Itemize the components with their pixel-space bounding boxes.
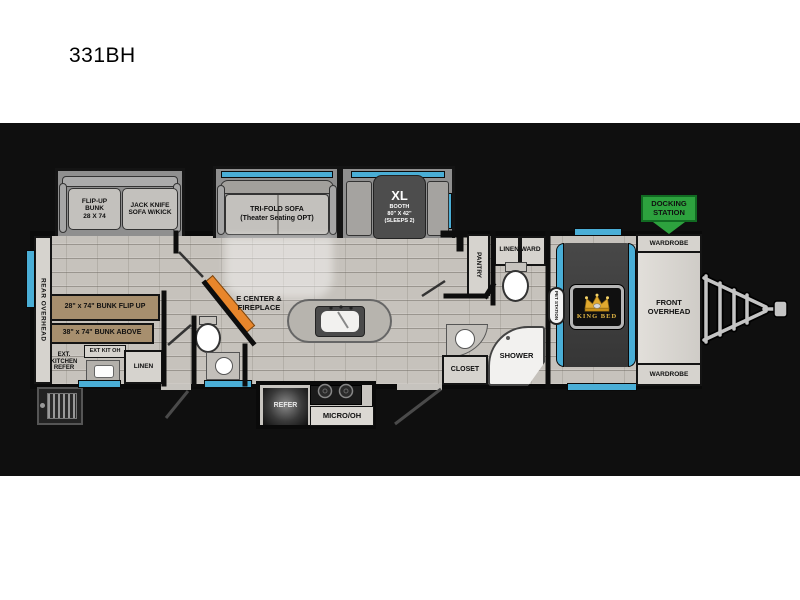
ext-kitchen-sink-counter <box>86 360 120 381</box>
ext-kitchen-overhead: EXT KIT OH <box>84 345 126 358</box>
tri-fold-armrest-right <box>329 185 337 235</box>
wardrobe-bottom: WARDROBE <box>636 363 702 386</box>
king-bed-badge: KING BED <box>570 285 624 329</box>
sofa-armrest-left <box>59 183 67 233</box>
island-sink <box>315 306 365 337</box>
tri-fold-backrest <box>220 180 334 194</box>
tri-fold-sofa-slideout: TRI-FOLD SOFA (Theater Seating OPT) <box>213 166 340 238</box>
king-bed-label: KING BED <box>577 313 617 320</box>
sofa-backrest <box>62 176 178 187</box>
linen-ward-label-wrap: LINEN/WARD <box>491 244 549 256</box>
front-overhead-label: FRONT OVERHEAD <box>648 299 691 316</box>
wardrobe-bottom-label: WARDROBE <box>650 371 689 378</box>
cooktop <box>310 385 362 405</box>
pet-station-label: PET STATION <box>554 291 559 320</box>
booth-xl-label: XL <box>391 189 408 204</box>
pantry-cabinet: PANTRY <box>467 234 490 296</box>
flip-up-bunk-cushion: FLIP-UP BUNK 28 X 74 <box>68 188 121 230</box>
model-number: 331BH <box>69 44 136 68</box>
refer-label: REFER <box>274 402 298 410</box>
pantry-label: PANTRY <box>475 252 482 278</box>
main-bath-toilet <box>500 262 530 302</box>
closet: CLOSET <box>442 355 488 385</box>
booth-bench-right <box>427 181 449 236</box>
shower-label: SHOWER <box>500 352 534 361</box>
jack-knife-sofa-label: JACK KNIFE SOFA W/KICK <box>128 202 171 217</box>
light-glow <box>225 236 333 298</box>
bed-accent-right <box>628 243 636 367</box>
toilet-bowl <box>195 323 221 353</box>
wardrobe-top-label: WARDROBE <box>650 240 689 247</box>
docking-station-banner: DOCKING STATION <box>641 195 697 222</box>
booth-details-label: BOOTH 80" X 42" (SLEEPS 2) <box>385 204 415 225</box>
micro-oh-label: MICRO/OH <box>323 412 361 421</box>
rear-window <box>26 250 35 308</box>
ext-kitchen-sink <box>94 365 114 378</box>
bunk-flip-up-bed: 28" x 74" BUNK FLIP UP <box>50 294 160 321</box>
mid-bath-window <box>204 380 252 388</box>
e-center-label-wrap: E CENTER & FIREPLACE <box>226 293 292 315</box>
booth-slideout: XL BOOTH 80" X 42" (SLEEPS 2) <box>340 166 455 238</box>
vanity-sink <box>215 357 233 375</box>
exterior-kitchen: EXT. KITCHEN REFER <box>46 344 82 380</box>
bunk-above-bed: 38" x 74" BUNK ABOVE <box>50 323 154 344</box>
flip-up-bunk-label: FLIP-UP BUNK 28 X 74 <box>82 198 107 220</box>
linen-ward-label: LINEN/WARD <box>499 246 540 253</box>
booth-bench-left <box>346 181 372 236</box>
griddle-grate <box>47 393 77 419</box>
bunk-above-label: 38" x 74" BUNK ABOVE <box>63 329 142 337</box>
docking-station-arrow <box>653 222 685 234</box>
vanity-sink <box>455 329 475 349</box>
rear-entry-door <box>161 384 191 390</box>
kitchen-appliance-wall: REFER MICRO/OH <box>256 381 376 429</box>
jack-knife-sofa-cushion: JACK KNIFE SOFA W/KICK <box>122 188 178 230</box>
bunk-sofa-slideout: FLIP-UP BUNK 28 X 74 JACK KNIFE SOFA W/K… <box>55 168 185 236</box>
kitchen-island <box>287 299 392 343</box>
griddle-knob <box>40 403 45 408</box>
front-overhead: FRONT OVERHEAD <box>636 251 702 365</box>
floorplan-page: 331BH REAR OVERHEAD FLIP-UP BUNK 28 X 74… <box>0 0 800 600</box>
mid-bath-vanity <box>206 352 240 380</box>
bedroom-window-bottom <box>567 383 637 391</box>
mid-bath-toilet <box>195 316 223 354</box>
tri-fold-armrest-left <box>217 185 225 235</box>
tri-fold-seat: TRI-FOLD SOFA (Theater Seating OPT) <box>225 194 329 235</box>
ext-kitchen-window <box>78 380 121 388</box>
tri-fold-sofa-label: TRI-FOLD SOFA (Theater Seating OPT) <box>240 206 314 222</box>
ext-kit-oh-label: EXT KIT OH <box>90 348 121 354</box>
tri-fold-window <box>221 171 333 178</box>
pet-station: PET STATION <box>548 287 565 325</box>
booth-table: XL BOOTH 80" X 42" (SLEEPS 2) <box>373 175 426 239</box>
bunk-flip-up-label: 28" x 74" BUNK FLIP UP <box>65 303 146 311</box>
closet-label: CLOSET <box>451 366 479 374</box>
microwave-overhead: MICRO/OH <box>310 406 374 426</box>
rear-overhead-label: REAR OVERHEAD <box>39 278 46 342</box>
bedroom-window-top <box>574 228 622 236</box>
crown-icon <box>582 293 612 313</box>
toilet-bowl <box>502 270 529 302</box>
linen-closet: LINEN <box>124 350 163 384</box>
e-center-label: E CENTER & FIREPLACE <box>236 295 281 312</box>
linen-label: LINEN <box>134 363 154 370</box>
ext-kitchen-label: EXT. KITCHEN REFER <box>51 352 78 373</box>
main-entry-door <box>397 384 442 390</box>
exterior-griddle <box>37 387 83 425</box>
refrigerator: REFER <box>263 388 308 425</box>
island-sink-basin <box>321 311 359 332</box>
docking-station-label: DOCKING STATION <box>651 200 686 217</box>
